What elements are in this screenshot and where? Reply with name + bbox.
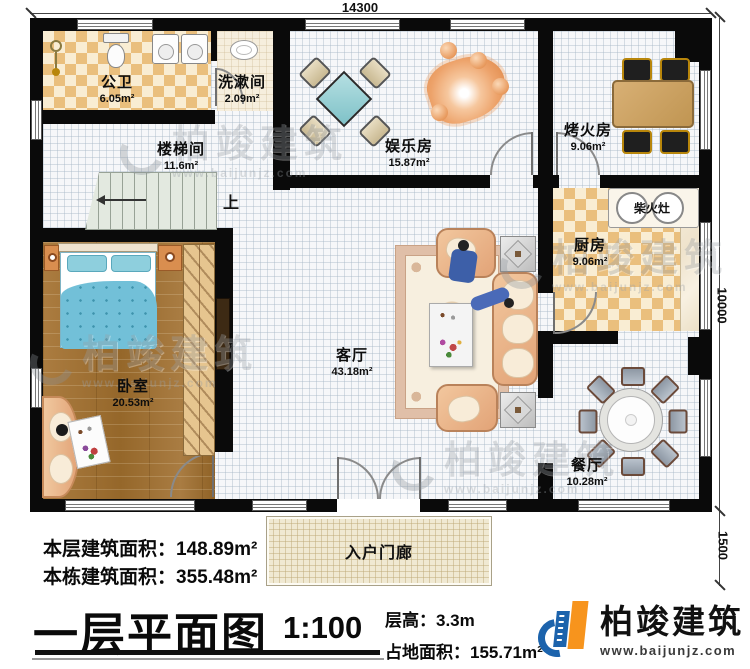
room-label-fire-room: 烤火房 9.06m² (564, 119, 612, 153)
dining-table-center (625, 414, 637, 426)
floor-height-value: 3.3m (436, 611, 475, 630)
art-rug-dot (431, 104, 448, 121)
side-table (500, 236, 536, 272)
summary-floor-area: 本层建筑面积：148.89m² (43, 534, 257, 561)
blanket (61, 281, 157, 349)
room-label-bedroom: 卧室 20.53m² (113, 375, 154, 409)
wood-stove-label: 柴火灶 (634, 200, 670, 217)
floor-height: 层高：3.3m (385, 606, 475, 631)
sink-basin (236, 45, 252, 55)
brand-name: 柏竣建筑 (600, 604, 744, 640)
side-table-center (515, 407, 521, 413)
room-label-washroom: 洗漱间 2.09m² (218, 71, 266, 105)
chair-icon (622, 58, 652, 82)
window (700, 222, 711, 330)
washer-drum (158, 44, 174, 60)
stairs-direction-line (104, 199, 146, 201)
bed-headboard (58, 243, 158, 252)
washer-icon (152, 34, 179, 64)
entrance-gap (337, 499, 420, 512)
stairs-arrowhead (96, 195, 105, 205)
side-table (500, 392, 536, 428)
wall-kitchen-bottom (538, 331, 618, 344)
window (31, 100, 42, 140)
nightstand (158, 245, 182, 271)
room-label-stairwell: 楼梯间 11.6m² (157, 138, 205, 172)
land-area: 占地面积：155.71m² (385, 638, 543, 663)
art-rug-dot (492, 78, 509, 95)
logo-building-orange (567, 601, 588, 649)
door-leaf-kitchen (553, 292, 555, 334)
door-leaf-fire-room (556, 132, 558, 175)
chair-icon (622, 130, 652, 154)
logo-windows (557, 615, 565, 641)
wall-under-fire-stub (553, 175, 559, 188)
stairs-up-label: 上 (223, 189, 239, 213)
brand-site: www.baijunjz.com (600, 643, 744, 658)
wall-under-entertainment (273, 175, 490, 188)
wall-entertainment-fire (538, 18, 553, 188)
toilet-bowl (107, 44, 125, 68)
window (700, 70, 711, 150)
lamp-icon (48, 253, 57, 262)
side-table-center (515, 251, 521, 257)
window (700, 379, 711, 457)
room-label-living-room: 客厅 43.18m² (332, 344, 373, 378)
dim-line-right (719, 18, 720, 512)
pillow (111, 255, 151, 272)
window (77, 19, 153, 30)
door-leaf-entrance-left (337, 457, 339, 499)
wall-kitchen-left-a (538, 188, 553, 293)
sofa-cushion (49, 454, 73, 484)
summary-floor-value: 148.89m² (176, 539, 257, 560)
chair-icon (621, 457, 645, 476)
chair-icon (579, 410, 598, 434)
brand-logo-icon (538, 599, 592, 663)
wall-under-bathroom (43, 110, 215, 124)
window (252, 500, 307, 511)
land-area-value: 155.71m² (470, 643, 543, 662)
door-leaf-entertainment (531, 132, 533, 175)
room-label-public-bath: 公卫 6.05m² (100, 71, 135, 105)
wall-corner-tr (675, 18, 712, 62)
chair-icon (669, 410, 688, 434)
door-leaf-bedroom (212, 452, 214, 497)
sofa-cushion (446, 393, 482, 424)
window (448, 500, 507, 511)
dim-right-label: 10000 (715, 276, 730, 336)
summary-building-area: 本栋建筑面积：355.48m² (43, 562, 257, 589)
chair-icon (660, 130, 690, 154)
person-head (458, 240, 469, 251)
floor-plan: 上 柴火灶 (0, 0, 750, 669)
person-icon (56, 424, 68, 436)
summary-building-value: 355.48m² (176, 567, 257, 588)
coffee-table (429, 303, 473, 367)
window (578, 500, 670, 511)
wall-kitchen-left-c (538, 463, 553, 499)
person-icon (448, 248, 478, 283)
washer-drum (187, 44, 203, 60)
chair-icon (621, 367, 645, 386)
tv-cabinet (216, 298, 230, 370)
summary-building-label: 本栋建筑面积： (43, 567, 176, 588)
title-underline-thin (32, 658, 384, 660)
door-leaf-bathroom (215, 68, 217, 106)
armchair (436, 384, 498, 432)
bed (60, 252, 156, 348)
floor-height-label: 层高： (385, 611, 436, 630)
window (65, 500, 195, 511)
door-leaf-entrance-right (419, 457, 421, 499)
toilet-tank (103, 33, 129, 43)
wall-pillar-right (688, 337, 712, 375)
fire-room-table (612, 80, 694, 128)
sink-icon (230, 40, 258, 60)
dim-porch-label: 1500 (716, 516, 731, 576)
brand-text: 柏竣建筑 www.baijunjz.com (600, 604, 744, 657)
dim-top-label: 14300 (333, 0, 387, 15)
art-rug-dot (470, 52, 487, 69)
summary-floor-label: 本层建筑面积： (43, 539, 176, 560)
wall-washroom-right (273, 18, 290, 190)
window (305, 19, 400, 30)
brand-logo: 柏竣建筑 www.baijunjz.com (538, 596, 748, 666)
shower-head (52, 68, 60, 76)
person-head (504, 298, 514, 308)
room-label-dining-room: 餐厅 10.28m² (567, 454, 608, 488)
porch-label: 入户门廊 (345, 539, 413, 563)
title-underline-thick (35, 650, 380, 655)
washer-icon (181, 34, 208, 64)
wall-under-fire (600, 175, 699, 188)
chair-icon (660, 58, 690, 82)
shower-icon (50, 40, 62, 52)
sofa-cushion (502, 348, 534, 378)
scale-label: 1:100 (283, 610, 362, 646)
wall-bedroom-top (30, 228, 233, 242)
pillow (67, 255, 107, 272)
wardrobe (183, 244, 215, 456)
lamp-icon (165, 252, 175, 262)
window (450, 19, 525, 30)
land-area-label: 占地面积： (385, 643, 470, 662)
room-label-kitchen: 厨房 9.06m² (573, 234, 608, 268)
sofa-cushion (502, 314, 534, 344)
nightstand (44, 245, 59, 271)
window (31, 368, 42, 408)
room-label-entertainment: 娱乐房 15.87m² (385, 135, 433, 169)
wall-bath-washroom (211, 31, 217, 61)
dim-tick (714, 579, 725, 590)
art-rug-dot (440, 42, 457, 59)
